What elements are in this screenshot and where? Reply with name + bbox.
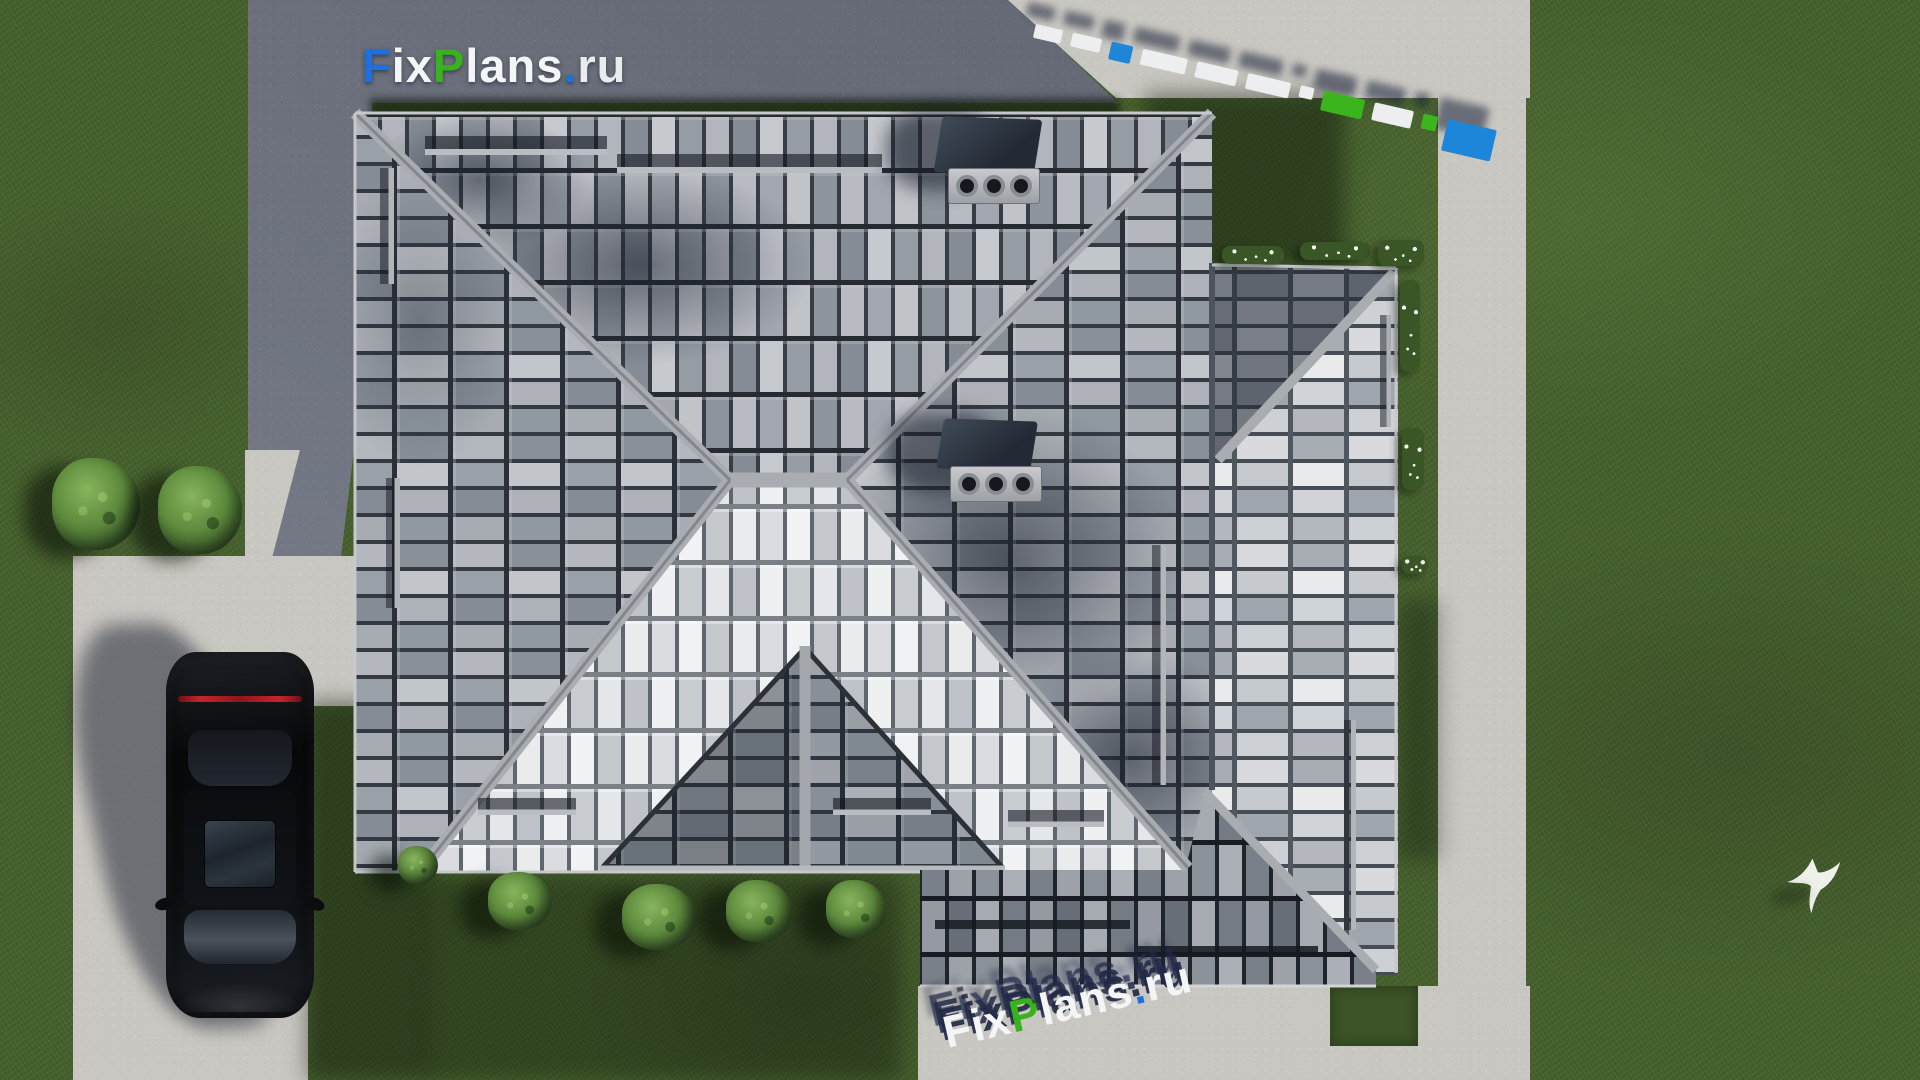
- snow-guard-rail: [1152, 545, 1166, 785]
- aerial-render: FixPlans.ru FixPlans.ru: [0, 0, 1920, 1080]
- snow-guard-rail: [380, 168, 394, 284]
- black-sedan-car: [166, 652, 314, 1018]
- bush: [726, 880, 792, 942]
- snow-guard-rail: [386, 478, 400, 608]
- bird-icon: [1781, 851, 1852, 919]
- snow-guard-rail: [425, 136, 607, 155]
- flower-bed: [1400, 280, 1420, 372]
- bush: [622, 884, 696, 950]
- flower-bed: [1402, 556, 1428, 574]
- snow-guard-rail: [478, 798, 576, 815]
- vent-pipe: [983, 175, 1005, 197]
- logo-part: .: [563, 39, 577, 92]
- car-rear-glass: [188, 730, 292, 786]
- car-sunroof: [204, 820, 276, 888]
- logo-part: lans: [465, 39, 563, 92]
- vent-pipe: [985, 473, 1007, 495]
- watermark-logo-top-left: FixPlans.ru: [362, 38, 626, 93]
- car-taillight: [178, 696, 302, 702]
- white-bird: [1781, 851, 1852, 919]
- flower-bed: [1222, 246, 1284, 264]
- bush: [398, 846, 438, 884]
- logo-part: ru: [577, 39, 626, 92]
- snow-guard-rail: [1380, 315, 1391, 427]
- bush: [826, 880, 886, 938]
- vent-pipe: [958, 473, 980, 495]
- bush: [158, 466, 242, 554]
- flower-bed: [1300, 242, 1370, 260]
- logo-part: P: [433, 39, 465, 92]
- snow-guard-rail: [617, 154, 882, 173]
- logo-part: ix: [392, 39, 433, 92]
- snow-guard-rail: [1008, 810, 1104, 827]
- vent-pipe: [1010, 175, 1032, 197]
- logo-part: F: [362, 39, 392, 92]
- car-hood: [176, 968, 304, 1012]
- vent-pipe: [1012, 473, 1034, 495]
- vent-pipe: [956, 175, 978, 197]
- flower-bed: [1378, 240, 1424, 266]
- snow-guard-rail: [833, 798, 931, 815]
- bush: [52, 458, 140, 550]
- snow-guard-rail: [1344, 720, 1356, 930]
- flower-bed: [1402, 428, 1424, 490]
- car-windshield: [184, 910, 296, 964]
- bush: [488, 872, 552, 930]
